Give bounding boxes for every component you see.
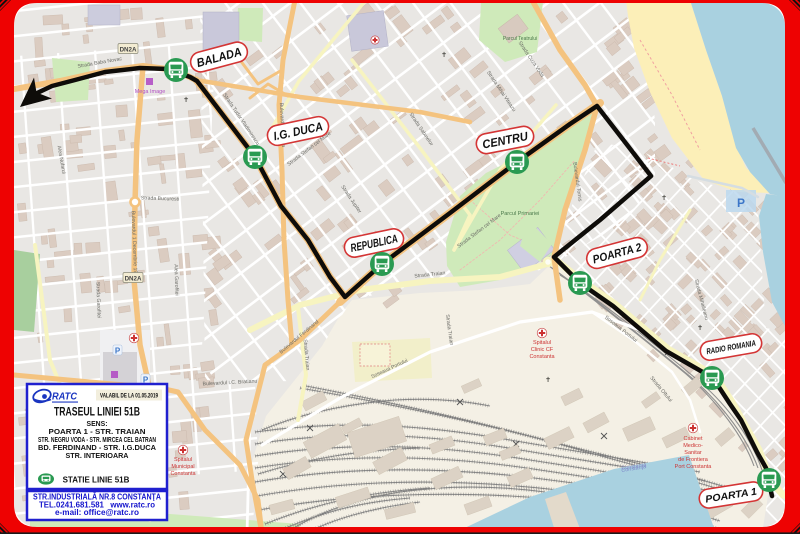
svg-text:✝: ✝	[697, 324, 703, 332]
svg-text:✝: ✝	[441, 51, 447, 59]
svg-text:✝: ✝	[183, 96, 189, 104]
svg-text:Spitalul: Spitalul	[533, 340, 551, 346]
svg-text:Sanitar: Sanitar	[684, 450, 702, 456]
svg-text:STR. INTERIOARA: STR. INTERIOARA	[66, 453, 129, 460]
svg-text:Medico-: Medico-	[683, 443, 703, 449]
svg-text:✝: ✝	[661, 194, 667, 202]
svg-text:Parcul Teatrului: Parcul Teatrului	[503, 36, 537, 42]
svg-text:POARTA 1 - STR. TRAIAN: POARTA 1 - STR. TRAIAN	[49, 429, 146, 436]
svg-text:Port Constanta: Port Constanta	[675, 464, 713, 470]
svg-text:RATC: RATC	[52, 391, 77, 403]
svg-text:STATIE LINIE 51B: STATIE LINIE 51B	[63, 476, 130, 485]
svg-text:DN2A: DN2A	[125, 276, 142, 283]
svg-text:P: P	[737, 196, 745, 210]
svg-text:✝: ✝	[545, 376, 551, 384]
svg-text:Municipal: Municipal	[171, 464, 194, 470]
svg-text:Parcul Primariei: Parcul Primariei	[501, 211, 540, 217]
svg-text:STR. NEGRU VODA - STR. MIRCEA: STR. NEGRU VODA - STR. MIRCEA CEL BATRAN	[38, 437, 156, 444]
svg-text:de Frontiera: de Frontiera	[678, 457, 709, 463]
svg-text:Constanta: Constanta	[170, 471, 196, 477]
svg-text:VALABIL DE LA 01.05.2019: VALABIL DE LA 01.05.2019	[100, 393, 158, 400]
svg-text:DN2A: DN2A	[120, 47, 137, 54]
svg-text:Constanta: Constanta	[529, 354, 555, 360]
svg-text:Alea Garofitei: Alea Garofitei	[172, 264, 179, 296]
svg-text:SENS:: SENS:	[87, 421, 108, 428]
svg-text:Strada Garofitei: Strada Garofitei	[94, 282, 101, 319]
svg-text:Clinic CF: Clinic CF	[531, 347, 554, 353]
svg-text:e-mail: office@ratc.ro: e-mail: office@ratc.ro	[55, 508, 139, 517]
svg-text:TRASEUL LINIEI 51B: TRASEUL LINIEI 51B	[54, 407, 140, 419]
svg-text:Mega Image: Mega Image	[135, 89, 166, 95]
svg-text:BD. FERDINAND - STR. I.G.DUCA: BD. FERDINAND - STR. I.G.DUCA	[38, 445, 156, 452]
svg-text:Spitalul: Spitalul	[174, 457, 192, 463]
svg-text:Cabinet: Cabinet	[684, 436, 703, 442]
svg-text:P: P	[115, 347, 121, 356]
